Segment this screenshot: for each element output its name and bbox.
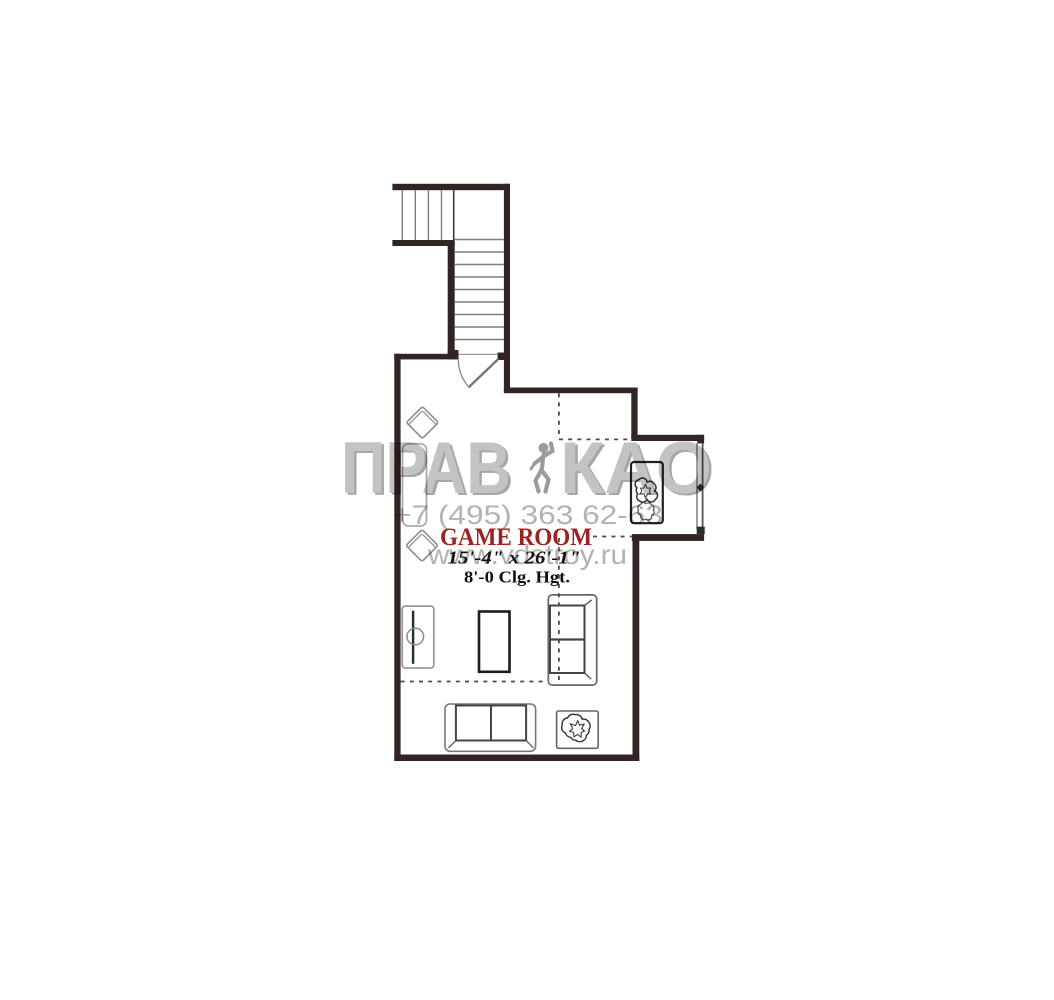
svg-text:КАО: КАО: [560, 428, 712, 509]
svg-text:ПРАВ: ПРАВ: [341, 428, 511, 509]
svg-text:8'-0 Clg. Hgt.: 8'-0 Clg. Hgt.: [464, 568, 570, 587]
svg-text:15'-4" x 26'-1": 15'-4" x 26'-1": [448, 548, 581, 568]
